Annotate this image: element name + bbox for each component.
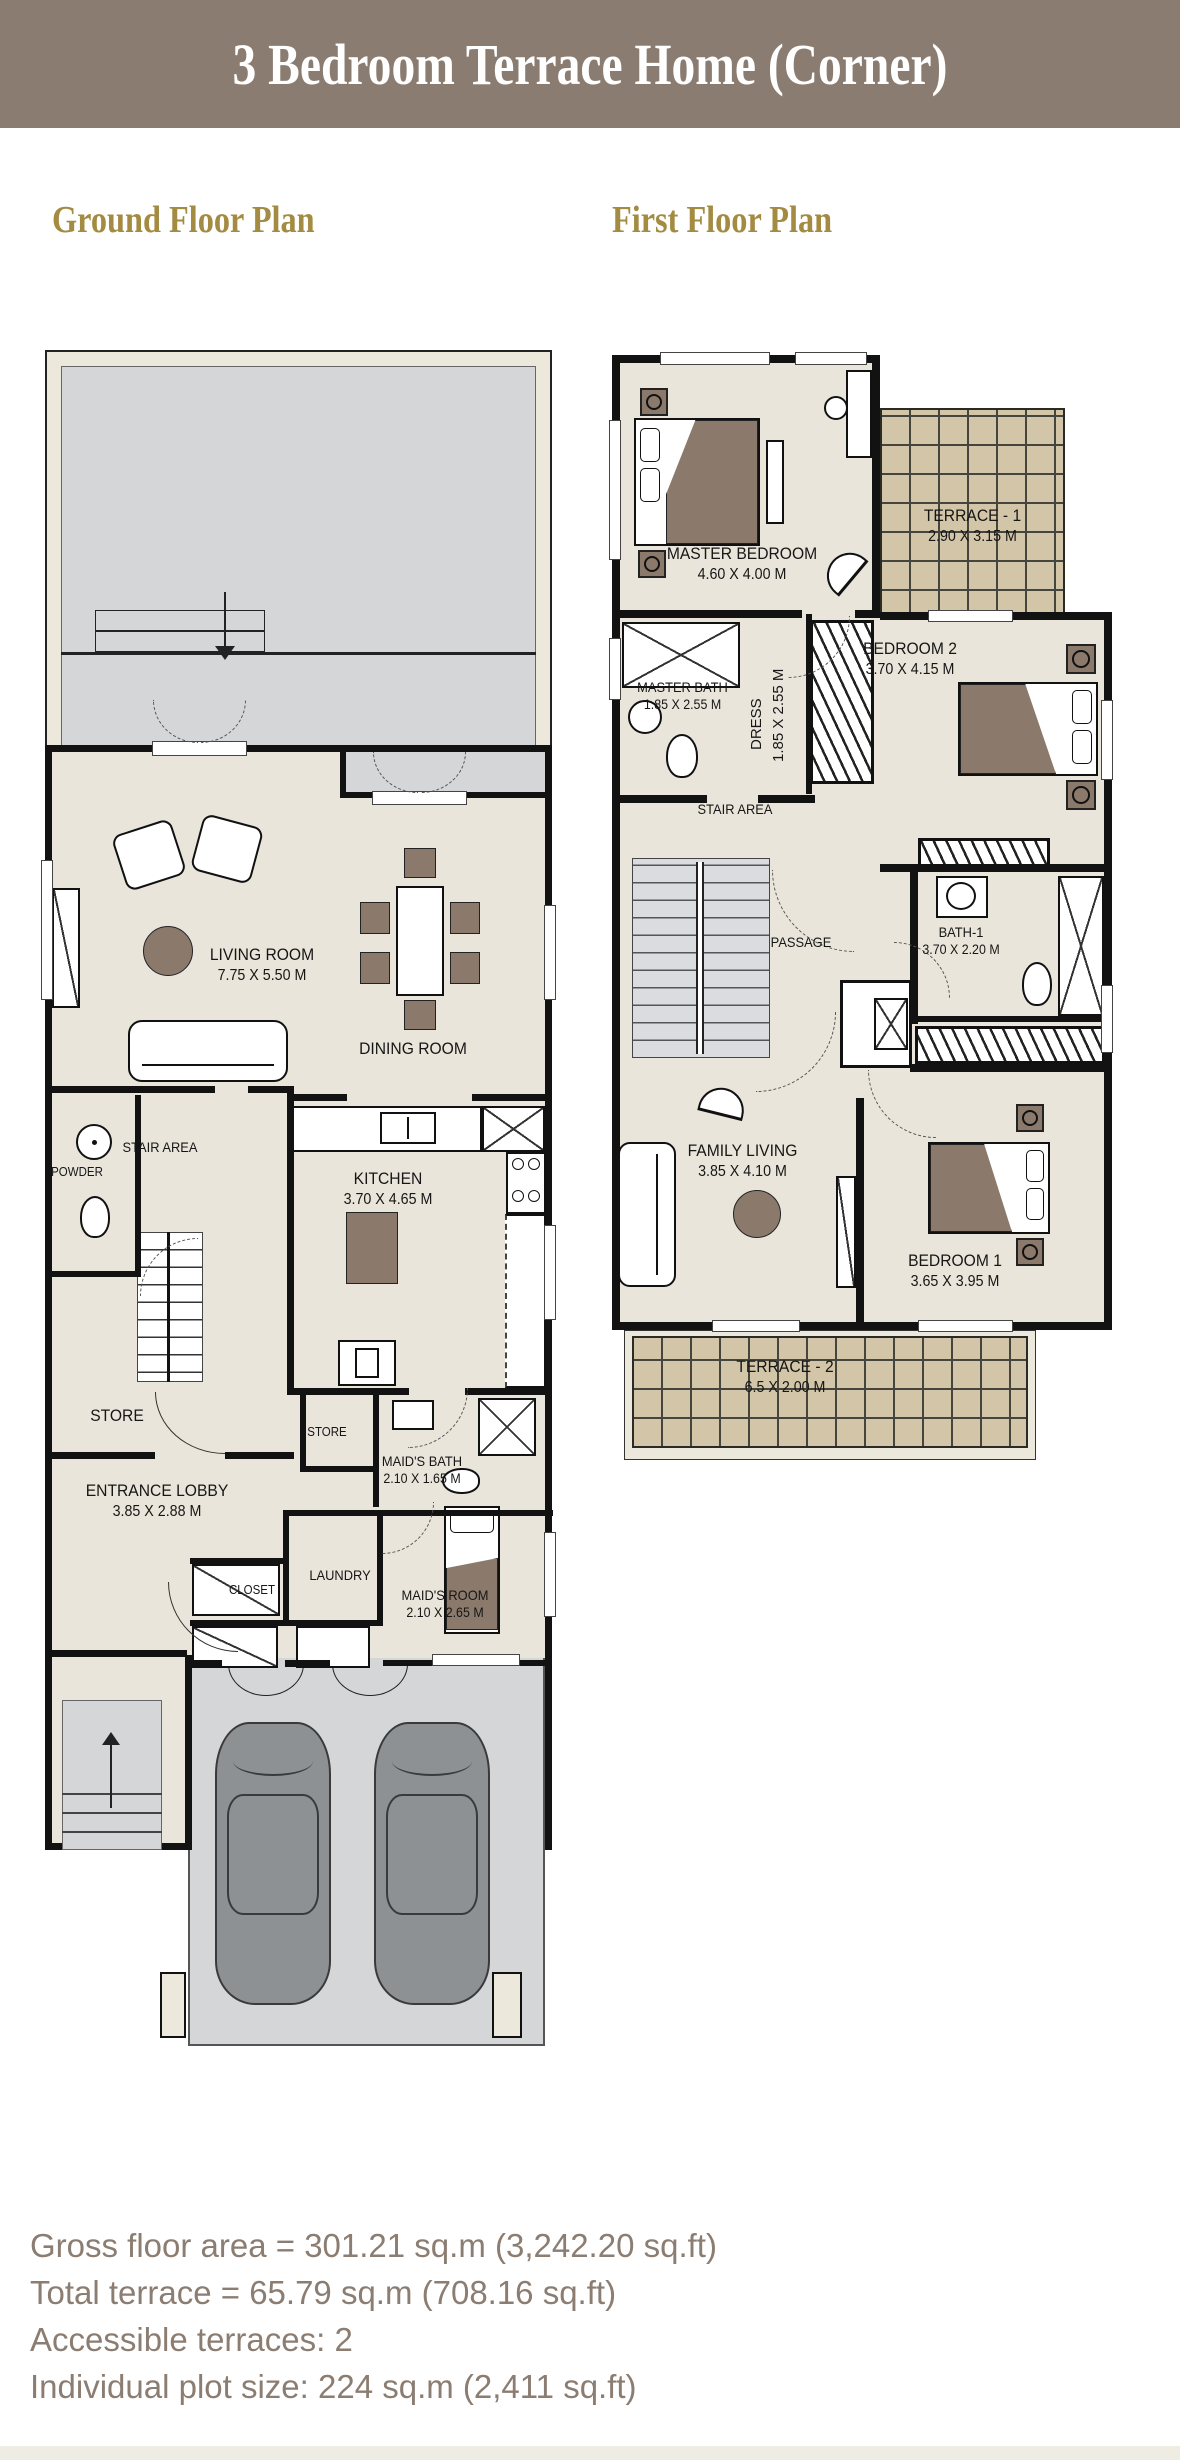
pillow-icon — [1072, 690, 1092, 724]
speaker-icon — [1016, 1104, 1044, 1132]
wall-segment — [45, 1086, 215, 1093]
porch-steps — [62, 1788, 162, 1850]
window-marker — [544, 1532, 556, 1617]
room-label-entrance-lobby: ENTRANCE LOBBY 3.85 X 2.88 M — [74, 1480, 240, 1523]
yard-steps — [95, 610, 265, 652]
wall-segment — [287, 1094, 347, 1101]
kitchen-counter-icon — [505, 1214, 546, 1388]
wall-segment — [135, 1095, 141, 1277]
room-label-store: STORE — [66, 1405, 167, 1427]
room-label-powder: POWDER — [45, 1164, 109, 1181]
room-dims: 3.65 X 3.95 M — [872, 1272, 1038, 1292]
tv-unit-icon — [836, 1176, 856, 1288]
room-name: DINING ROOM — [330, 1038, 496, 1060]
stat-accessible-terraces: Accessible terraces: 2 — [30, 2316, 890, 2363]
room-dims: 3.85 X 4.10 M — [657, 1162, 827, 1182]
room-label-bedroom-2: BEDROOM 2 3.70 X 4.15 M — [827, 638, 993, 681]
room-name: TERRACE - 1 — [887, 505, 1057, 527]
room-name: BEDROOM 1 — [872, 1250, 1038, 1272]
room-dims: 7.75 X 5.50 M — [179, 966, 345, 986]
tv-unit-icon — [52, 888, 80, 1008]
wall-segment — [45, 1271, 141, 1277]
stat-total-terrace: Total terrace = 65.79 sq.m (708.16 sq.ft… — [30, 2269, 890, 2316]
room-name: KITCHEN — [305, 1168, 471, 1190]
gate-post-icon — [492, 1972, 522, 2038]
speaker-icon — [640, 388, 668, 416]
gate-post-icon — [160, 1972, 186, 2038]
room-name: MAID'S BATH — [358, 1452, 487, 1470]
room-label-bath-1: BATH-1 3.70 X 2.20 M — [901, 923, 1021, 959]
kitchen-island-icon — [346, 1212, 398, 1284]
room-label-bedroom-1: BEDROOM 1 3.65 X 3.95 M — [872, 1250, 1038, 1293]
room-name: STAIR AREA — [661, 800, 808, 818]
room-label-terrace-1: TERRACE - 1 2.90 X 3.15 M — [887, 505, 1057, 548]
room-dims: 3.70 X 2.20 M — [901, 941, 1021, 959]
wall-segment — [856, 1098, 864, 1330]
room-label-laundry: LAUNDRY — [289, 1566, 390, 1584]
room-dims: 6.5 X 2.00 M — [665, 1378, 904, 1398]
window-marker — [712, 1320, 800, 1332]
desk-chair-icon — [824, 396, 848, 420]
step-arrow-line — [110, 1742, 112, 1808]
room-label-maids-bath: MAID'S BATH 2.10 X 1.65 M — [358, 1452, 487, 1488]
dining-chair-icon — [404, 1000, 436, 1030]
wall-segment — [285, 1660, 330, 1667]
floor-plan-sheet: 3 Bedroom Terrace Home (Corner) Ground F… — [0, 0, 1180, 2460]
room-name: TERRACE - 2 — [665, 1356, 904, 1378]
wall-segment — [910, 1064, 1112, 1072]
room-dims: 1.85 X 2.55 M — [620, 696, 744, 714]
room-label-terrace-2: TERRACE - 2 6.5 X 2.00 M — [665, 1356, 904, 1399]
room-dims: 3.85 X 2.88 M — [74, 1502, 240, 1522]
room-name: STAIR AREA — [100, 1138, 220, 1156]
window-marker — [795, 352, 867, 365]
room-name: PASSAGE — [741, 933, 861, 951]
window-marker — [544, 905, 556, 1000]
window-marker — [918, 1320, 1013, 1332]
bed-bench-icon — [766, 440, 784, 524]
shaft-icon — [874, 998, 908, 1050]
burner-icon — [528, 1190, 540, 1202]
room-dims: 2.10 X 1.65 M — [358, 1470, 487, 1488]
closet-icon — [915, 1026, 1105, 1064]
title-bar: 3 Bedroom Terrace Home (Corner) — [0, 0, 1180, 128]
french-door-dining — [372, 791, 467, 805]
room-name: STORE — [295, 1424, 359, 1441]
room-name: LIVING ROOM — [179, 944, 345, 966]
room-dims: 3.70 X 4.65 M — [305, 1190, 471, 1210]
window-marker — [41, 860, 53, 1000]
wall-segment — [45, 1452, 155, 1459]
room-name: POWDER — [45, 1164, 109, 1181]
room-dims: 3.70 X 4.15 M — [827, 660, 993, 680]
window-marker — [1101, 700, 1113, 780]
room-label-maids-room: MAID'S ROOM 2.10 X 2.65 M — [385, 1586, 505, 1622]
car-icon — [215, 1722, 331, 2005]
front-yard — [61, 366, 536, 750]
wall-segment — [872, 355, 880, 618]
sink-icon — [946, 882, 976, 910]
dining-table-icon — [396, 886, 444, 996]
room-name: BEDROOM 2 — [827, 638, 993, 660]
step-arrow-up-icon — [102, 1732, 120, 1745]
room-name: CLOSET — [211, 1582, 294, 1599]
wall-segment — [283, 1510, 289, 1625]
kitchen-sink-icon — [380, 1112, 436, 1144]
room-label-family-living: FAMILY LIVING 3.85 X 4.10 M — [657, 1140, 827, 1183]
wall-segment — [373, 1395, 379, 1507]
shower-icon — [478, 1398, 536, 1456]
pillow-icon — [640, 428, 660, 462]
room-dims: 4.60 X 4.00 M — [650, 565, 834, 585]
stair-rail — [696, 862, 704, 1054]
speaker-icon — [1066, 780, 1096, 810]
room-label-closet: CLOSET — [211, 1582, 294, 1599]
room-name: ENTRANCE LOBBY — [74, 1480, 240, 1502]
room-label-stair-area: STAIR AREA — [661, 800, 808, 818]
room-label-master-bath: MASTER BATH 1.85 X 2.55 M — [620, 678, 744, 714]
stat-plot-size: Individual plot size: 224 sq.m (2,411 sq… — [30, 2363, 890, 2410]
pillow-icon — [1026, 1150, 1044, 1182]
burner-icon — [512, 1190, 524, 1202]
room-name: MASTER BEDROOM — [650, 543, 834, 565]
wall-segment — [465, 1388, 552, 1395]
room-label-master-bedroom: MASTER BEDROOM 4.60 X 4.00 M — [650, 543, 834, 586]
sofa-icon — [128, 1020, 288, 1082]
window-marker — [609, 420, 621, 560]
corner-cabinet-icon — [482, 1106, 545, 1152]
first-floor-heading: First Floor Plan — [612, 198, 832, 242]
room-name: MASTER BATH — [620, 678, 744, 696]
wall-segment — [45, 1650, 187, 1657]
dining-chair-icon — [450, 902, 480, 934]
wall-segment — [185, 1655, 192, 1850]
room-label-dining: DINING ROOM — [330, 1038, 496, 1060]
dining-chair-icon — [450, 952, 480, 984]
wall-segment — [192, 1660, 222, 1667]
page-title: 3 Bedroom Terrace Home (Corner) — [233, 31, 948, 98]
window-marker — [928, 610, 1013, 622]
room-name: FAMILY LIVING — [657, 1140, 827, 1162]
burner-icon — [528, 1158, 540, 1170]
toilet-icon — [666, 734, 698, 778]
pillow-icon — [640, 468, 660, 502]
window-marker — [1101, 985, 1113, 1053]
room-dims-dress: 1.85 X 2.55 M — [770, 612, 787, 762]
room-name: MAID'S ROOM — [385, 1586, 505, 1604]
window-marker — [544, 1225, 556, 1320]
yard-edge-line — [61, 652, 536, 655]
step-arrow-down-icon — [215, 646, 235, 660]
plan-statistics: Gross floor area = 301.21 sq.m (3,242.20… — [30, 2222, 890, 2410]
dining-chair-icon — [360, 902, 390, 934]
speaker-icon — [1066, 644, 1096, 674]
room-label-passage: PASSAGE — [741, 933, 861, 951]
pillow-icon — [1026, 1188, 1044, 1220]
room-label-store-small: STORE — [295, 1424, 359, 1441]
french-door-living — [152, 741, 247, 756]
sink-drain-icon — [92, 1140, 97, 1145]
wall-segment — [910, 1016, 1112, 1022]
car-icon — [374, 1722, 490, 2005]
toilet-icon — [80, 1196, 110, 1238]
window-marker — [609, 638, 621, 700]
ground-floor-heading: Ground Floor Plan — [52, 198, 315, 242]
desk-icon — [846, 370, 872, 458]
wall-segment — [287, 1388, 409, 1395]
rug-icon — [733, 1190, 781, 1238]
room-name: BATH-1 — [901, 923, 1021, 941]
dining-chair-icon — [360, 952, 390, 984]
wall-segment — [472, 1094, 552, 1101]
room-name: STORE — [66, 1405, 167, 1427]
room-label-stair-area: STAIR AREA — [100, 1138, 220, 1156]
prep-sink-icon — [355, 1348, 379, 1378]
wall-segment — [855, 610, 880, 618]
window-marker — [432, 1654, 520, 1666]
wall-segment — [190, 1558, 285, 1564]
bottom-strip — [0, 2446, 1180, 2460]
room-dims: 2.10 X 2.65 M — [385, 1604, 505, 1622]
room-label-kitchen: KITCHEN 3.70 X 4.65 M — [305, 1168, 471, 1211]
shower-icon — [1058, 876, 1104, 1016]
step-arrow-line — [224, 592, 226, 648]
wall-segment — [287, 1086, 294, 1395]
pillow-icon — [1072, 730, 1092, 764]
room-dims: 2.90 X 3.15 M — [887, 527, 1057, 547]
dining-chair-icon — [404, 848, 436, 878]
stat-gross-floor-area: Gross floor area = 301.21 sq.m (3,242.20… — [30, 2222, 890, 2269]
window-marker — [660, 352, 770, 365]
room-label-dress: DRESS — [748, 640, 765, 750]
room-label-living: LIVING ROOM 7.75 X 5.50 M — [179, 944, 345, 987]
room-name: LAUNDRY — [289, 1566, 390, 1584]
toilet-icon — [1022, 962, 1052, 1006]
wall-segment — [225, 1452, 294, 1459]
burner-icon — [512, 1158, 524, 1170]
